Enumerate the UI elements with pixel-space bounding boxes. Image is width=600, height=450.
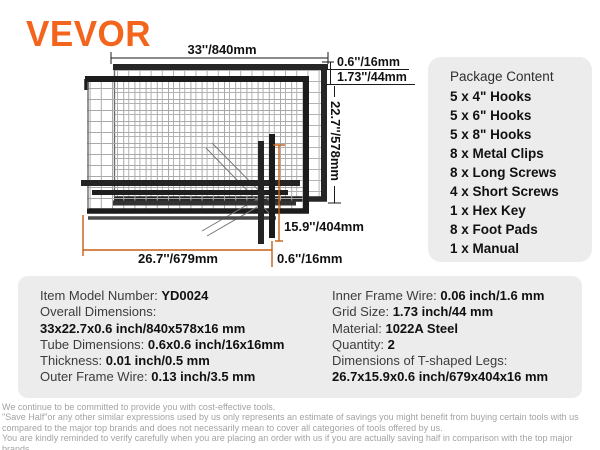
dim-leg-height: 15.9''/404mm — [284, 219, 364, 234]
package-content-list: 5 x 4" Hooks 5 x 6" Hooks 5 x 8" Hooks 8… — [450, 87, 592, 258]
spec-label: Item Model Number: — [40, 288, 161, 303]
spec-value: 0.13 inch/3.5 mm — [151, 369, 255, 384]
spec-row: Tube Dimensions: 0.6x0.6 inch/16x16mm — [40, 337, 285, 353]
spec-value: 2 — [388, 337, 395, 352]
spec-value: 26.7x15.9x0.6 inch/679x404x16 mm — [332, 369, 548, 384]
disclaimer-line: You are kindly reminded to verify carefu… — [2, 433, 598, 450]
package-item: 4 x Short Screws — [450, 182, 592, 201]
spec-value: 0.06 inch/1.6 mm — [440, 288, 544, 303]
spec-row: 26.7x15.9x0.6 inch/679x404x16 mm — [332, 369, 548, 385]
spec-value: YD0024 — [161, 288, 208, 303]
spec-row: Outer Frame Wire: 0.13 inch/3.5 mm — [40, 369, 285, 385]
spec-label: Material: — [332, 321, 385, 336]
dim-grid-size: 1.73''/44mm — [337, 70, 407, 84]
spec-value: 33x22.7x0.6 inch/840x578x16 mm — [40, 321, 245, 336]
package-content-title: Package Content — [450, 67, 592, 87]
spec-row: Material: 1022A Steel — [332, 321, 548, 337]
specs-column-left: Item Model Number: YD0024 Overall Dimens… — [40, 288, 285, 386]
dim-frame-tube: 0.6''/16mm — [337, 55, 400, 69]
dim-leg-length: 26.7''/679mm — [138, 251, 218, 266]
package-content-box: Package Content 5 x 4" Hooks 5 x 6" Hook… — [428, 57, 592, 262]
dim-overall-width: 33''/840mm — [187, 42, 256, 57]
spec-value: 0.6x0.6 inch/16x16mm — [148, 337, 285, 352]
spec-label: Inner Frame Wire: — [332, 288, 440, 303]
package-item: 1 x Hex Key — [450, 201, 592, 220]
package-item: 5 x 8" Hooks — [450, 125, 592, 144]
package-item: 8 x Foot Pads — [450, 220, 592, 239]
spec-label: Grid Size: — [332, 304, 393, 319]
package-item: 8 x Long Screws — [450, 163, 592, 182]
vevor-logo: VEVOR — [26, 17, 151, 54]
spec-value: 0.01 inch/0.5 mm — [106, 353, 210, 368]
spec-row: Item Model Number: YD0024 — [40, 288, 285, 304]
spec-value: 1022A Steel — [385, 321, 458, 336]
spec-row: Quantity: 2 — [332, 337, 548, 353]
spec-row: Grid Size: 1.73 inch/44 mm — [332, 304, 548, 320]
spec-label: Outer Frame Wire: — [40, 369, 151, 384]
spec-row: Inner Frame Wire: 0.06 inch/1.6 mm — [332, 288, 548, 304]
spec-row: Dimensions of T-shaped Legs: — [332, 353, 548, 369]
disclaimer-line: We continue to be committed to provide y… — [2, 402, 598, 412]
spec-label: Overall Dimensions: — [40, 304, 156, 319]
spec-row: Overall Dimensions: — [40, 304, 285, 320]
package-item: 1 x Manual — [450, 239, 592, 258]
disclaimer: We continue to be committed to provide y… — [0, 402, 600, 450]
spec-label: Tube Dimensions: — [40, 337, 148, 352]
spec-value: 1.73 inch/44 mm — [393, 304, 493, 319]
spec-row: Thickness: 0.01 inch/0.5 mm — [40, 353, 285, 369]
package-item: 5 x 6" Hooks — [450, 106, 592, 125]
spec-label: Thickness: — [40, 353, 106, 368]
package-item: 5 x 4" Hooks — [450, 87, 592, 106]
spec-label: Dimensions of T-shaped Legs: — [332, 353, 507, 368]
dim-overall-height: 22.7''/578mm — [328, 101, 343, 181]
dim-leg-tube: 0.6''/16mm — [277, 251, 342, 266]
product-infographic: 33''/840mm 0.6''/16mm 1.73''/44mm 22.7''… — [0, 0, 600, 450]
disclaimer-line: "Save Half"or any other similar expressi… — [2, 412, 598, 433]
spec-row: 33x22.7x0.6 inch/840x578x16 mm — [40, 321, 285, 337]
package-item: 8 x Metal Clips — [450, 144, 592, 163]
spec-label: Quantity: — [332, 337, 388, 352]
specs-column-right: Inner Frame Wire: 0.06 inch/1.6 mm Grid … — [332, 288, 548, 386]
